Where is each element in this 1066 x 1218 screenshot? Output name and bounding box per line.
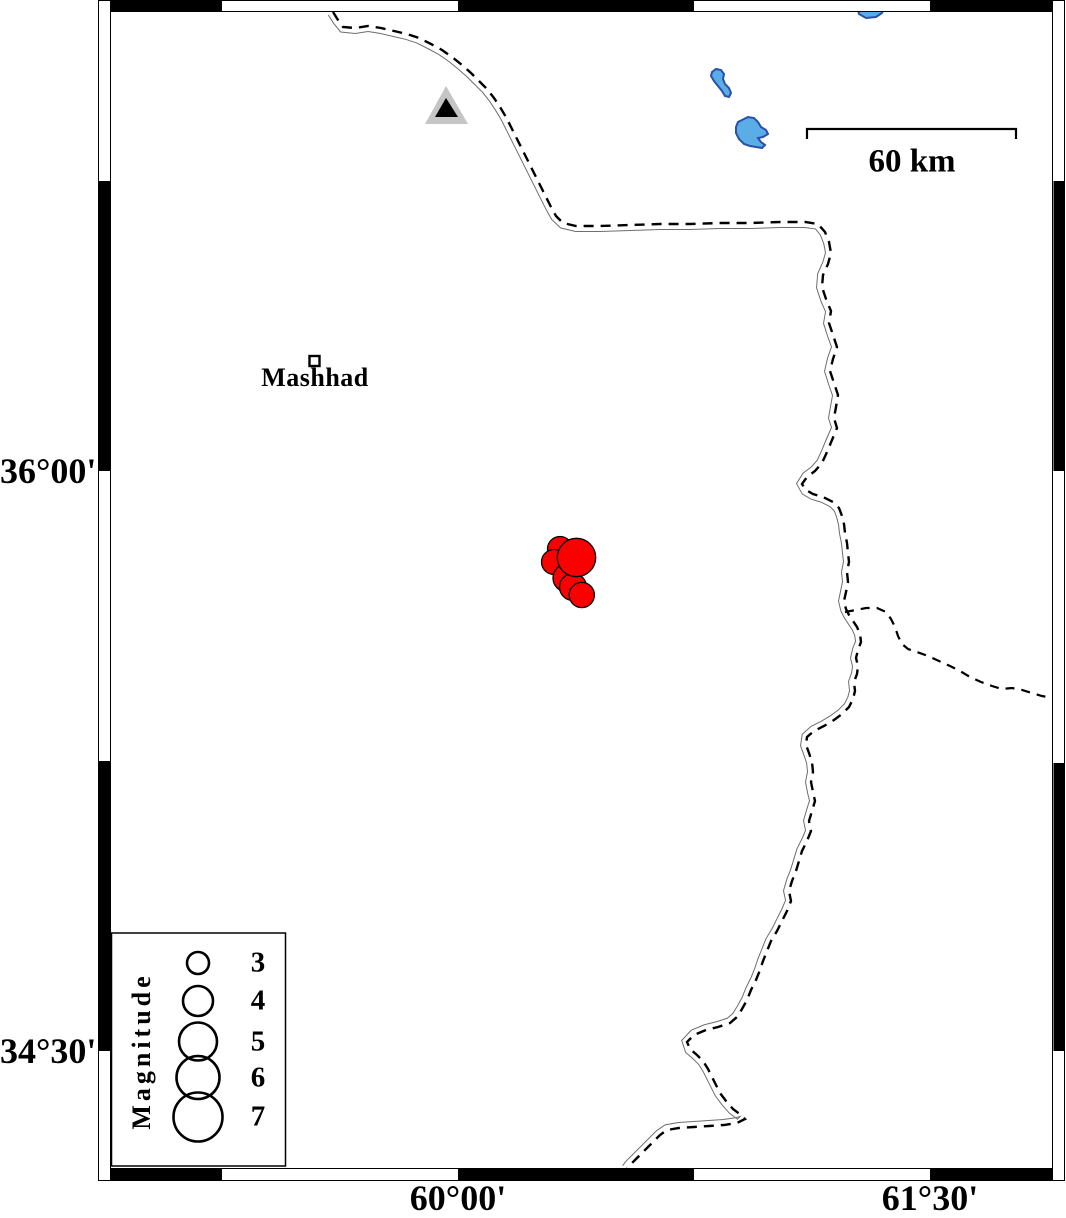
frame-segment <box>110 1 222 12</box>
frame-segment <box>99 761 110 1051</box>
earthquake-circle <box>569 582 594 607</box>
lake <box>711 69 731 97</box>
frame-segment <box>930 1 1053 12</box>
frame-segment <box>1054 181 1065 471</box>
legend-title-magnitude: Magnitude <box>127 972 157 1129</box>
frame-segment <box>458 1 694 12</box>
frame-segment <box>1054 763 1065 1051</box>
legend-value-5: 5 <box>251 1025 266 1058</box>
latitude-label-36-00: 36°00' <box>0 450 90 492</box>
lake <box>857 3 884 18</box>
scale-bar <box>807 129 1016 139</box>
lake <box>736 117 768 148</box>
scale-bar-label: 60 km <box>868 144 955 181</box>
border-dashed-branch <box>845 608 1053 698</box>
seismicity-map: 36°00' 34°30' 60°00' 61°30' 60 km Mashha… <box>0 0 1066 1218</box>
frame-segment <box>110 1169 222 1181</box>
legend-value-7: 7 <box>251 1101 266 1134</box>
earthquake-circle <box>557 538 595 576</box>
map-svg <box>0 0 1066 1218</box>
legend-value-6: 6 <box>251 1061 266 1094</box>
frame-segment <box>99 181 110 471</box>
longitude-label-61-30: 61°30' <box>882 1177 978 1218</box>
legend-value-3: 3 <box>251 947 266 980</box>
latitude-label-34-30: 34°30' <box>0 1030 90 1072</box>
border-dashed-main <box>333 12 861 1169</box>
longitude-label-60-00: 60°00' <box>410 1177 506 1218</box>
city-label-mashhad: Mashhad <box>261 363 369 393</box>
legend-value-4: 4 <box>251 985 266 1018</box>
